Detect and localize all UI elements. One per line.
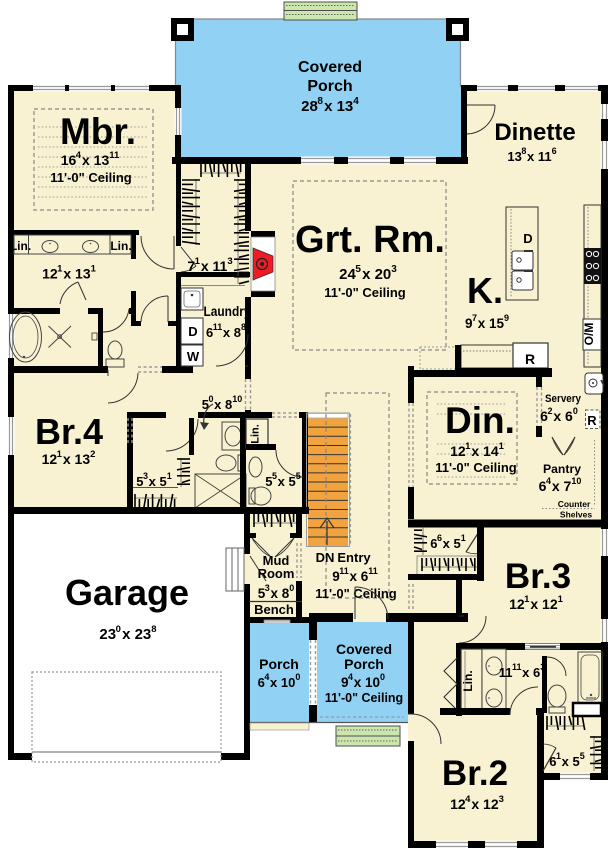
svg-text:Lin.: Lin.: [461, 670, 475, 691]
svg-text:D: D: [523, 231, 532, 246]
svg-text:11'-0" Ceiling: 11'-0" Ceiling: [315, 586, 397, 601]
svg-text:Br.4: Br.4: [35, 411, 103, 452]
svg-text:Room: Room: [258, 566, 295, 581]
svg-text:Mbr.: Mbr.: [60, 111, 136, 152]
svg-text:55 x 55: 55 x 55: [265, 471, 300, 489]
svg-text:53 x 51: 53 x 51: [136, 471, 171, 489]
svg-text:Pantry: Pantry: [543, 464, 582, 476]
svg-text:Lin.: Lin.: [10, 239, 31, 253]
svg-text:Lin.: Lin.: [110, 239, 131, 253]
svg-text:O/M: O/M: [582, 323, 596, 346]
svg-text:Porch: Porch: [307, 78, 352, 95]
svg-text:97 x 159: 97 x 159: [465, 313, 509, 331]
svg-text:62 x 60: 62 x 60: [540, 406, 578, 424]
svg-text:121 x 131: 121 x 131: [42, 264, 97, 282]
svg-text:Porch: Porch: [344, 656, 384, 672]
svg-text:Grt. Rm.: Grt. Rm.: [295, 219, 445, 261]
svg-text:DN: DN: [316, 550, 335, 565]
svg-text:53 x 80: 53 x 80: [258, 583, 295, 601]
svg-text:Porch: Porch: [259, 656, 299, 672]
svg-text:R: R: [587, 413, 597, 428]
svg-text:11'-0" Ceiling: 11'-0" Ceiling: [325, 691, 403, 705]
svg-text:Counter: Counter: [558, 499, 591, 509]
svg-text:Lin.: Lin.: [250, 424, 262, 444]
svg-text:11'-0" Ceiling: 11'-0" Ceiling: [324, 285, 406, 300]
svg-text:66 x 51: 66 x 51: [430, 533, 465, 551]
svg-text:121 x 121: 121 x 121: [509, 594, 564, 612]
svg-text:121 x 141: 121 x 141: [450, 441, 505, 459]
svg-text:Covered: Covered: [298, 59, 362, 76]
svg-text:Servery: Servery: [545, 393, 582, 405]
svg-text:D: D: [188, 324, 197, 339]
svg-text:124 x 123: 124 x 123: [450, 794, 504, 812]
svg-text:Entry: Entry: [337, 550, 371, 565]
svg-text:Br.2: Br.2: [442, 754, 508, 793]
svg-text:71 x 113: 71 x 113: [187, 256, 232, 274]
svg-text:288 x 134: 288 x 134: [301, 96, 359, 115]
svg-text:W: W: [187, 349, 200, 364]
svg-text:Laundry: Laundry: [204, 304, 251, 319]
svg-text:121 x 132: 121 x 132: [42, 449, 96, 467]
svg-text:K.: K.: [467, 270, 503, 311]
svg-text:94 x 100: 94 x 100: [341, 672, 385, 690]
svg-text:Garage: Garage: [65, 572, 189, 613]
svg-text:61 x 55: 61 x 55: [549, 751, 584, 769]
svg-text:11'-0" Ceiling: 11'-0" Ceiling: [50, 170, 132, 185]
svg-text:Bench: Bench: [254, 602, 294, 617]
svg-text:11'-0" Ceiling: 11'-0" Ceiling: [435, 460, 517, 475]
svg-text:Dinette: Dinette: [494, 119, 575, 146]
svg-text:230 x 238: 230 x 238: [99, 624, 156, 643]
svg-text:64 x 100: 64 x 100: [258, 672, 301, 690]
svg-text:Br.3: Br.3: [505, 557, 571, 596]
svg-text:Covered: Covered: [336, 641, 392, 657]
svg-text:1111 x 63: 1111 x 63: [499, 662, 545, 680]
svg-text:138 x 116: 138 x 116: [507, 146, 556, 164]
svg-text:Din.: Din.: [445, 400, 515, 441]
svg-text:R: R: [525, 351, 535, 367]
svg-text:Shelves: Shelves: [560, 510, 592, 520]
svg-text:245 x 203: 245 x 203: [339, 264, 397, 283]
svg-text:611 x 88: 611 x 88: [206, 322, 246, 340]
